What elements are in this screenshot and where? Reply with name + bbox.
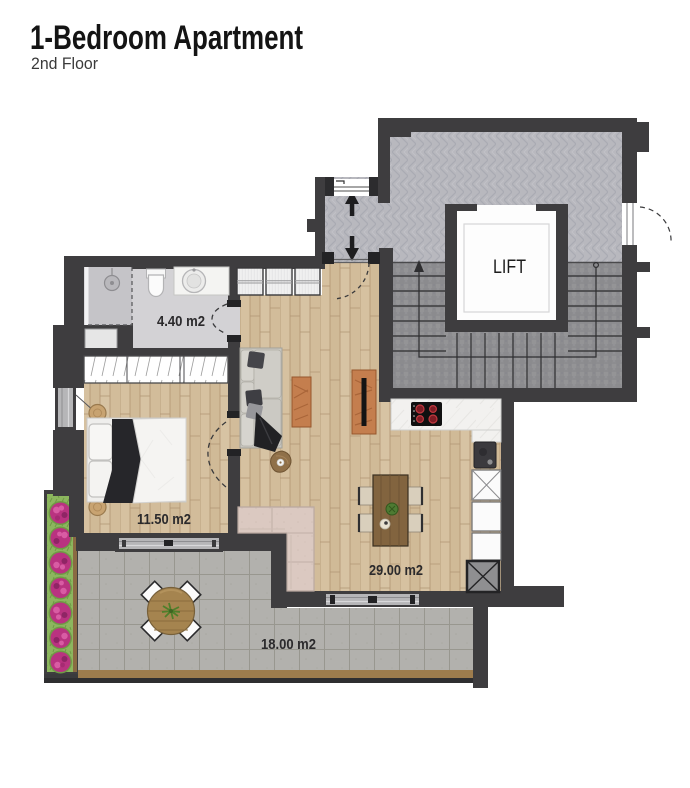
svg-text:LIFT: LIFT xyxy=(493,257,526,278)
svg-text:11.50 m2: 11.50 m2 xyxy=(137,512,191,528)
svg-text:1-Bedroom Apartment: 1-Bedroom Apartment xyxy=(30,19,303,57)
svg-text:18.00 m2: 18.00 m2 xyxy=(261,637,316,653)
svg-text:2nd Floor: 2nd Floor xyxy=(31,54,98,73)
svg-text:29.00 m2: 29.00 m2 xyxy=(369,563,423,579)
svg-text:4.40 m2: 4.40 m2 xyxy=(157,314,205,330)
